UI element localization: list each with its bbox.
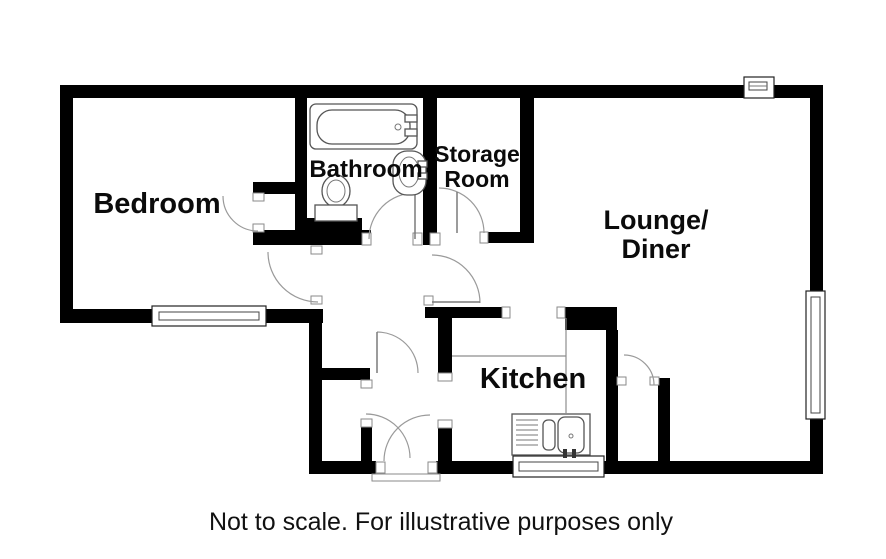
wall-hall-closet-vertical	[361, 427, 372, 461]
floorplan-page: Bedroom Bathroom Storage Room Lounge/ Di…	[0, 0, 886, 559]
storage-room-label-line2: Room	[444, 166, 509, 192]
jamb-lounge-closet-left	[617, 377, 626, 385]
wall-kitchen-top	[425, 307, 503, 318]
jamb-front-door-right	[428, 462, 437, 473]
jamb-bedroom-door-bottom	[311, 296, 322, 304]
storage-room-label-line1: Storage	[434, 141, 520, 167]
kitchen-label: Kitchen	[480, 363, 586, 395]
jamb-hall-closet-bottom	[361, 419, 372, 427]
sink-tap-hot	[563, 449, 567, 458]
bedroom-door-arc	[268, 252, 318, 302]
jamb-front-door-left	[376, 462, 385, 473]
wall-kitchen-left-lower	[438, 428, 452, 474]
jamb-kitchen-left-top	[438, 373, 452, 381]
bathtub-inner	[317, 110, 410, 144]
wall-kitchen-right	[606, 330, 618, 461]
jamb-hall-closet-top	[361, 380, 372, 388]
bedroom-window-glazing	[159, 312, 259, 320]
wall-kitchen-left-upper	[438, 318, 452, 373]
kitchen-window	[513, 456, 604, 477]
bathtub-tap-cold	[405, 129, 417, 136]
bathroom-door-arc	[369, 193, 415, 239]
kitchen-window-glazing	[519, 462, 598, 471]
wall-kitchen-right-chunk	[565, 307, 617, 330]
lounge-window	[806, 291, 825, 419]
kitchen-sink-unit	[512, 414, 590, 458]
disclaimer-caption: Not to scale. For illustrative purposes …	[209, 508, 674, 536]
meter-box	[744, 77, 774, 98]
jamb-kitchen-opening-right	[557, 307, 565, 318]
wall-storage-bottom	[487, 232, 534, 243]
storage-door-arc	[439, 188, 484, 233]
jamb-central-door	[424, 296, 433, 305]
floor-plan: Bedroom Bathroom Storage Room Lounge/ Di…	[0, 0, 886, 559]
toilet-cistern	[315, 205, 357, 221]
sink-bowl-large	[558, 417, 584, 453]
sink-bowl-small	[543, 420, 555, 450]
jamb-kitchen-opening-left	[502, 307, 510, 318]
jamb-kitchen-left-bottom	[438, 420, 452, 428]
bathtub-tap-hot	[405, 115, 417, 122]
central-hall-door-arc	[432, 255, 480, 303]
wall-bottom-a	[309, 461, 376, 474]
sink-tap-cold	[572, 449, 576, 458]
front-door-recess	[372, 474, 440, 481]
wall-storage-right	[520, 98, 534, 233]
wall-bathroom-left	[295, 98, 307, 220]
wall-hall-closet-stub	[322, 368, 370, 380]
wall-left	[60, 85, 73, 323]
wall-bedroom-bottom-left	[60, 309, 153, 323]
wall-lower-left-vertical	[309, 309, 322, 474]
wall-bottom-c	[603, 461, 823, 474]
jamb-bedroom-closet-top	[253, 193, 264, 201]
wall-hall-north-band	[253, 230, 371, 245]
bedroom-window	[152, 306, 266, 326]
bathroom-label: Bathroom	[309, 156, 422, 183]
wall-bedroom-closet-stub	[253, 182, 302, 194]
hall-closet-door-arc	[366, 414, 410, 458]
hall-kitchen-door-arc	[377, 332, 418, 373]
jamb-bedroom-door-top	[311, 246, 322, 254]
wall-top	[60, 85, 823, 98]
lounge-diner-label-line2: Diner	[621, 234, 691, 264]
bathtub	[310, 104, 417, 149]
wall-lounge-closet-vertical	[658, 378, 670, 461]
lounge-window-glazing	[811, 297, 820, 413]
jamb-storage-door-left	[430, 233, 440, 245]
jamb-storage-door-right	[480, 232, 488, 243]
bedroom-label: Bedroom	[93, 188, 220, 220]
lounge-diner-label-line1: Lounge/	[604, 205, 709, 235]
